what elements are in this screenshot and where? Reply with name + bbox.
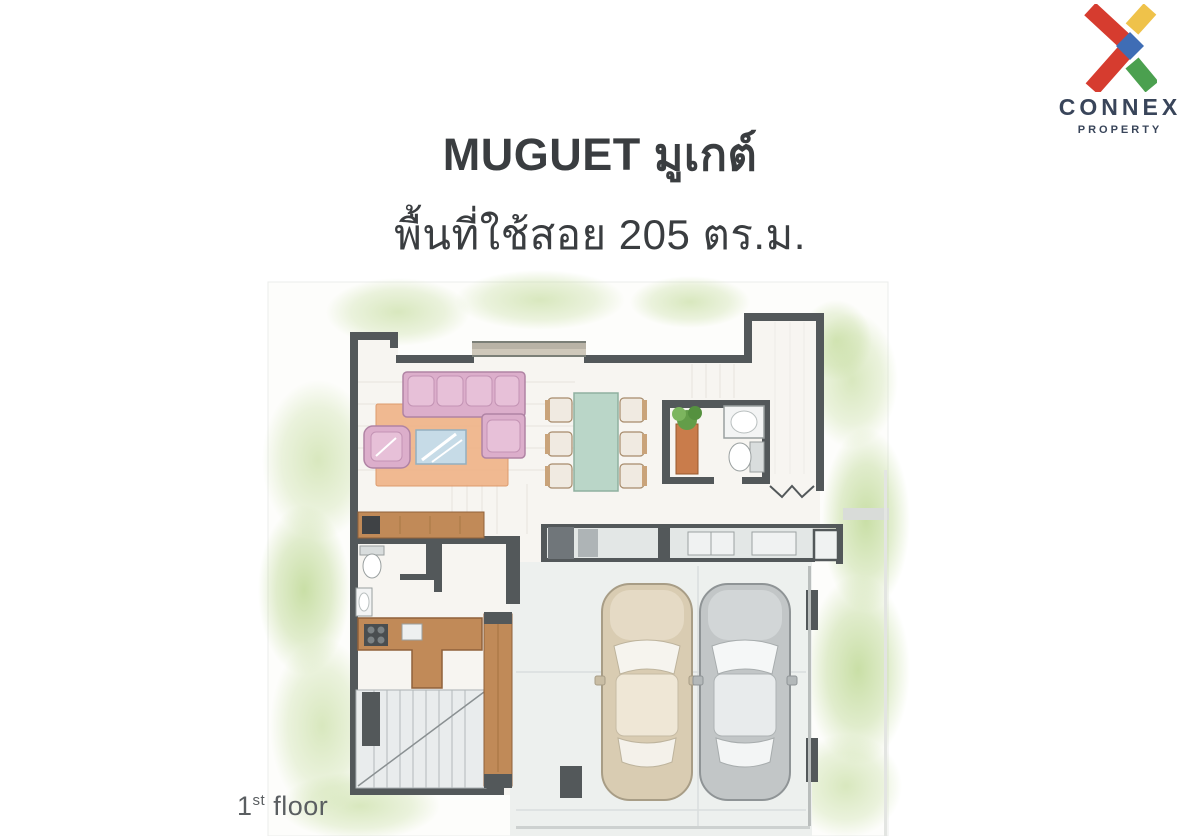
floor-word: floor xyxy=(273,791,328,821)
stove xyxy=(364,624,388,646)
washer xyxy=(814,530,838,560)
floor-ordinal-suffix: st xyxy=(253,792,266,809)
brand-tagline: PROPERTY xyxy=(1042,124,1198,136)
wood-partition xyxy=(484,612,512,788)
car-beige xyxy=(595,584,699,800)
x-logo-icon xyxy=(1083,4,1157,92)
page-title: MUGUET มูเกต์ xyxy=(0,118,1200,190)
floor-number: 1 xyxy=(237,791,253,821)
header: MUGUET มูเกต์ พื้นที่ใช้สอย 205 ตร.ม. xyxy=(0,118,1200,268)
sink-lower xyxy=(356,588,372,616)
floor-label: 1st floor xyxy=(237,791,328,822)
sliding-door xyxy=(472,341,586,357)
brand-name: CONNEX xyxy=(1042,94,1198,121)
dining-set xyxy=(545,393,647,491)
kitchen-counter xyxy=(541,524,843,564)
coffee-table xyxy=(416,430,466,464)
dining-table xyxy=(574,393,618,491)
brand-logo: CONNEX PROPERTY xyxy=(1042,4,1198,136)
kitchen-basin xyxy=(402,624,422,640)
planter xyxy=(676,424,698,474)
car-gray xyxy=(693,584,797,800)
stairs xyxy=(356,690,486,788)
toilet xyxy=(729,442,764,472)
tv-cabinet xyxy=(358,512,484,538)
bathroom-sink xyxy=(724,406,764,438)
armchair xyxy=(364,426,410,468)
page: MUGUET มูเกต์ พื้นที่ใช้สอย 205 ตร.ม. CO… xyxy=(0,0,1200,836)
page-subtitle: พื้นที่ใช้สอย 205 ตร.ม. xyxy=(0,202,1200,268)
